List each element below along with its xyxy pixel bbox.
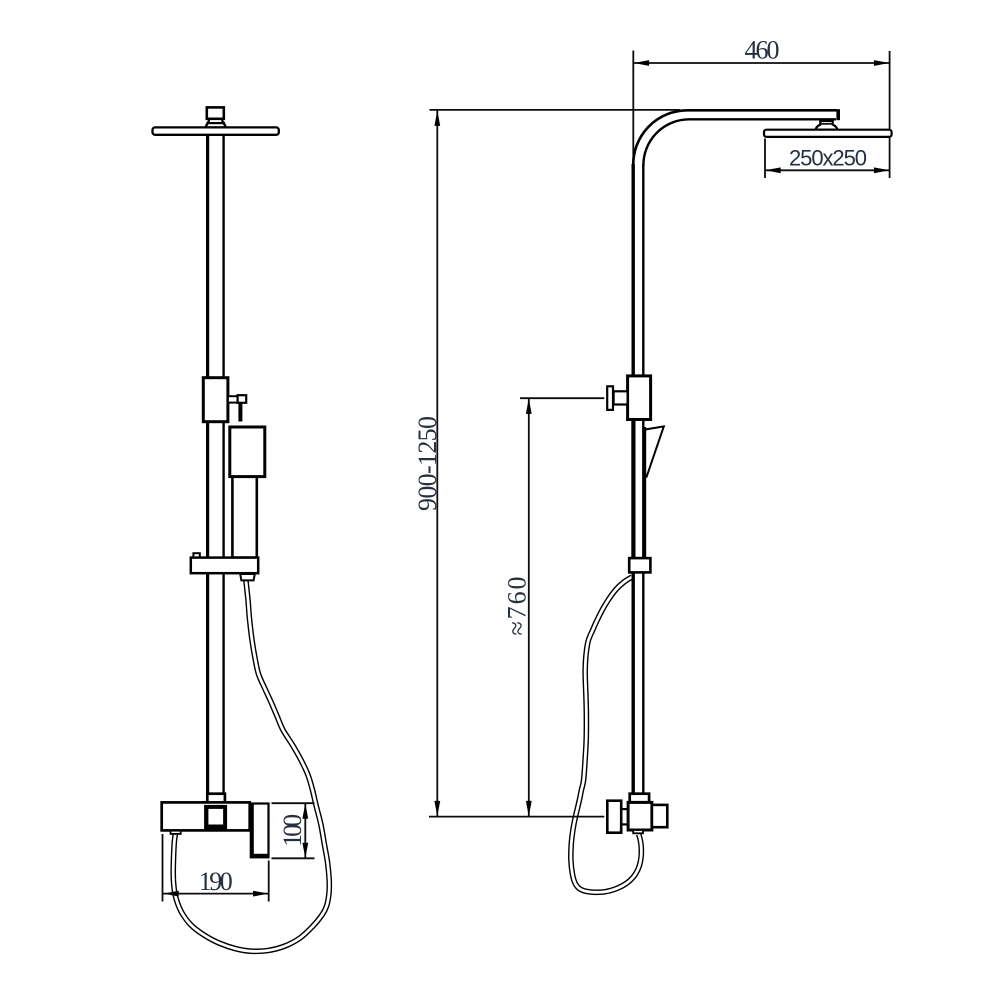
svg-text:250x250: 250x250 (789, 145, 867, 170)
svg-text:190: 190 (199, 867, 233, 896)
svg-text:900-1250: 900-1250 (413, 416, 442, 511)
svg-text:100: 100 (278, 814, 307, 847)
svg-text:460: 460 (745, 36, 780, 65)
